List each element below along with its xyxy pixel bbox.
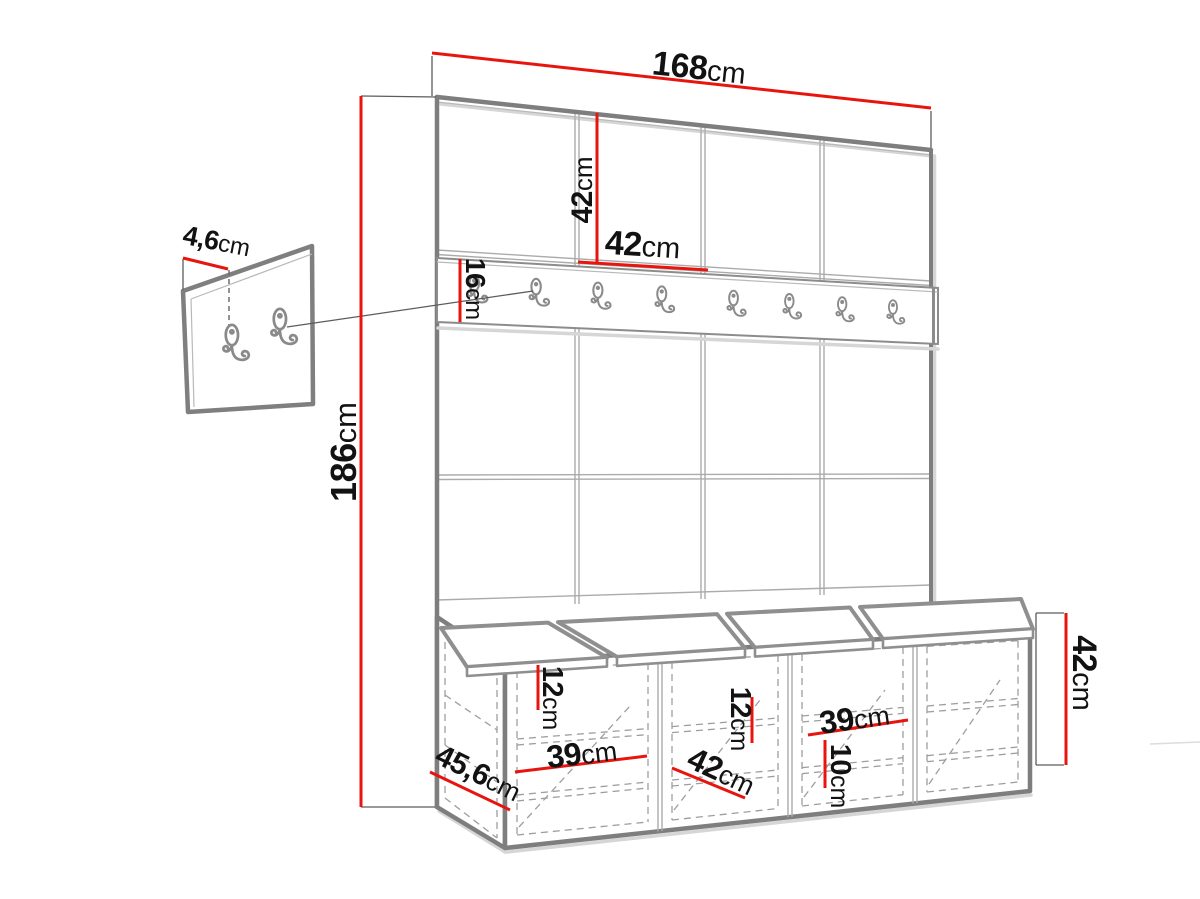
panel-top-edge — [437, 97, 931, 150]
panel-seam-vertical — [820, 140, 824, 595]
dimension-total-width: 168cm — [432, 44, 931, 148]
panel-seam-vertical — [701, 127, 705, 599]
dimension-label: 10cm — [824, 744, 856, 809]
furniture-dimension-diagram: 168cm 186cm 42cm 42cm 16cm 4,6cm 45,6cm — [0, 0, 1200, 899]
dimension-label: 42cm — [604, 224, 682, 267]
panel-seam-horizontal — [437, 585, 931, 600]
diagram-page: 168cm 186cm 42cm 42cm 16cm 4,6cm 45,6cm — [0, 0, 1200, 899]
dimension-label: 4,6cm — [180, 220, 253, 262]
dimension-left-shelf-drop: 12cm — [536, 665, 568, 730]
dimension-label: 12cm — [724, 687, 756, 752]
dimension-right-shelf-drop: 10cm — [824, 740, 856, 808]
dimension-rail-height: 16cm — [460, 258, 491, 322]
dimension-label: 168cm — [650, 44, 747, 92]
dimension-label: 42cm — [566, 156, 599, 223]
dimension-label: 42cm — [1065, 635, 1103, 711]
panel-top-inner-line — [437, 102, 931, 155]
dimension-total-height: 186cm — [323, 96, 436, 807]
dimension-label: 186cm — [323, 402, 364, 502]
dimension-label: 12cm — [536, 666, 568, 731]
dimension-top-panel-height: 42cm — [566, 113, 599, 264]
hook-rail — [437, 258, 938, 349]
dimension-line — [183, 258, 228, 269]
wall-line — [1150, 742, 1200, 744]
small-panel-face — [183, 246, 313, 412]
dimension-label: 16cm — [460, 258, 491, 320]
dimension-mid-shelf-drop: 12cm — [724, 687, 756, 752]
dimension-bench-height: 42cm — [1036, 613, 1103, 765]
panel-top-shadow — [441, 104, 933, 156]
panel-seam-horizontal — [437, 474, 931, 480]
